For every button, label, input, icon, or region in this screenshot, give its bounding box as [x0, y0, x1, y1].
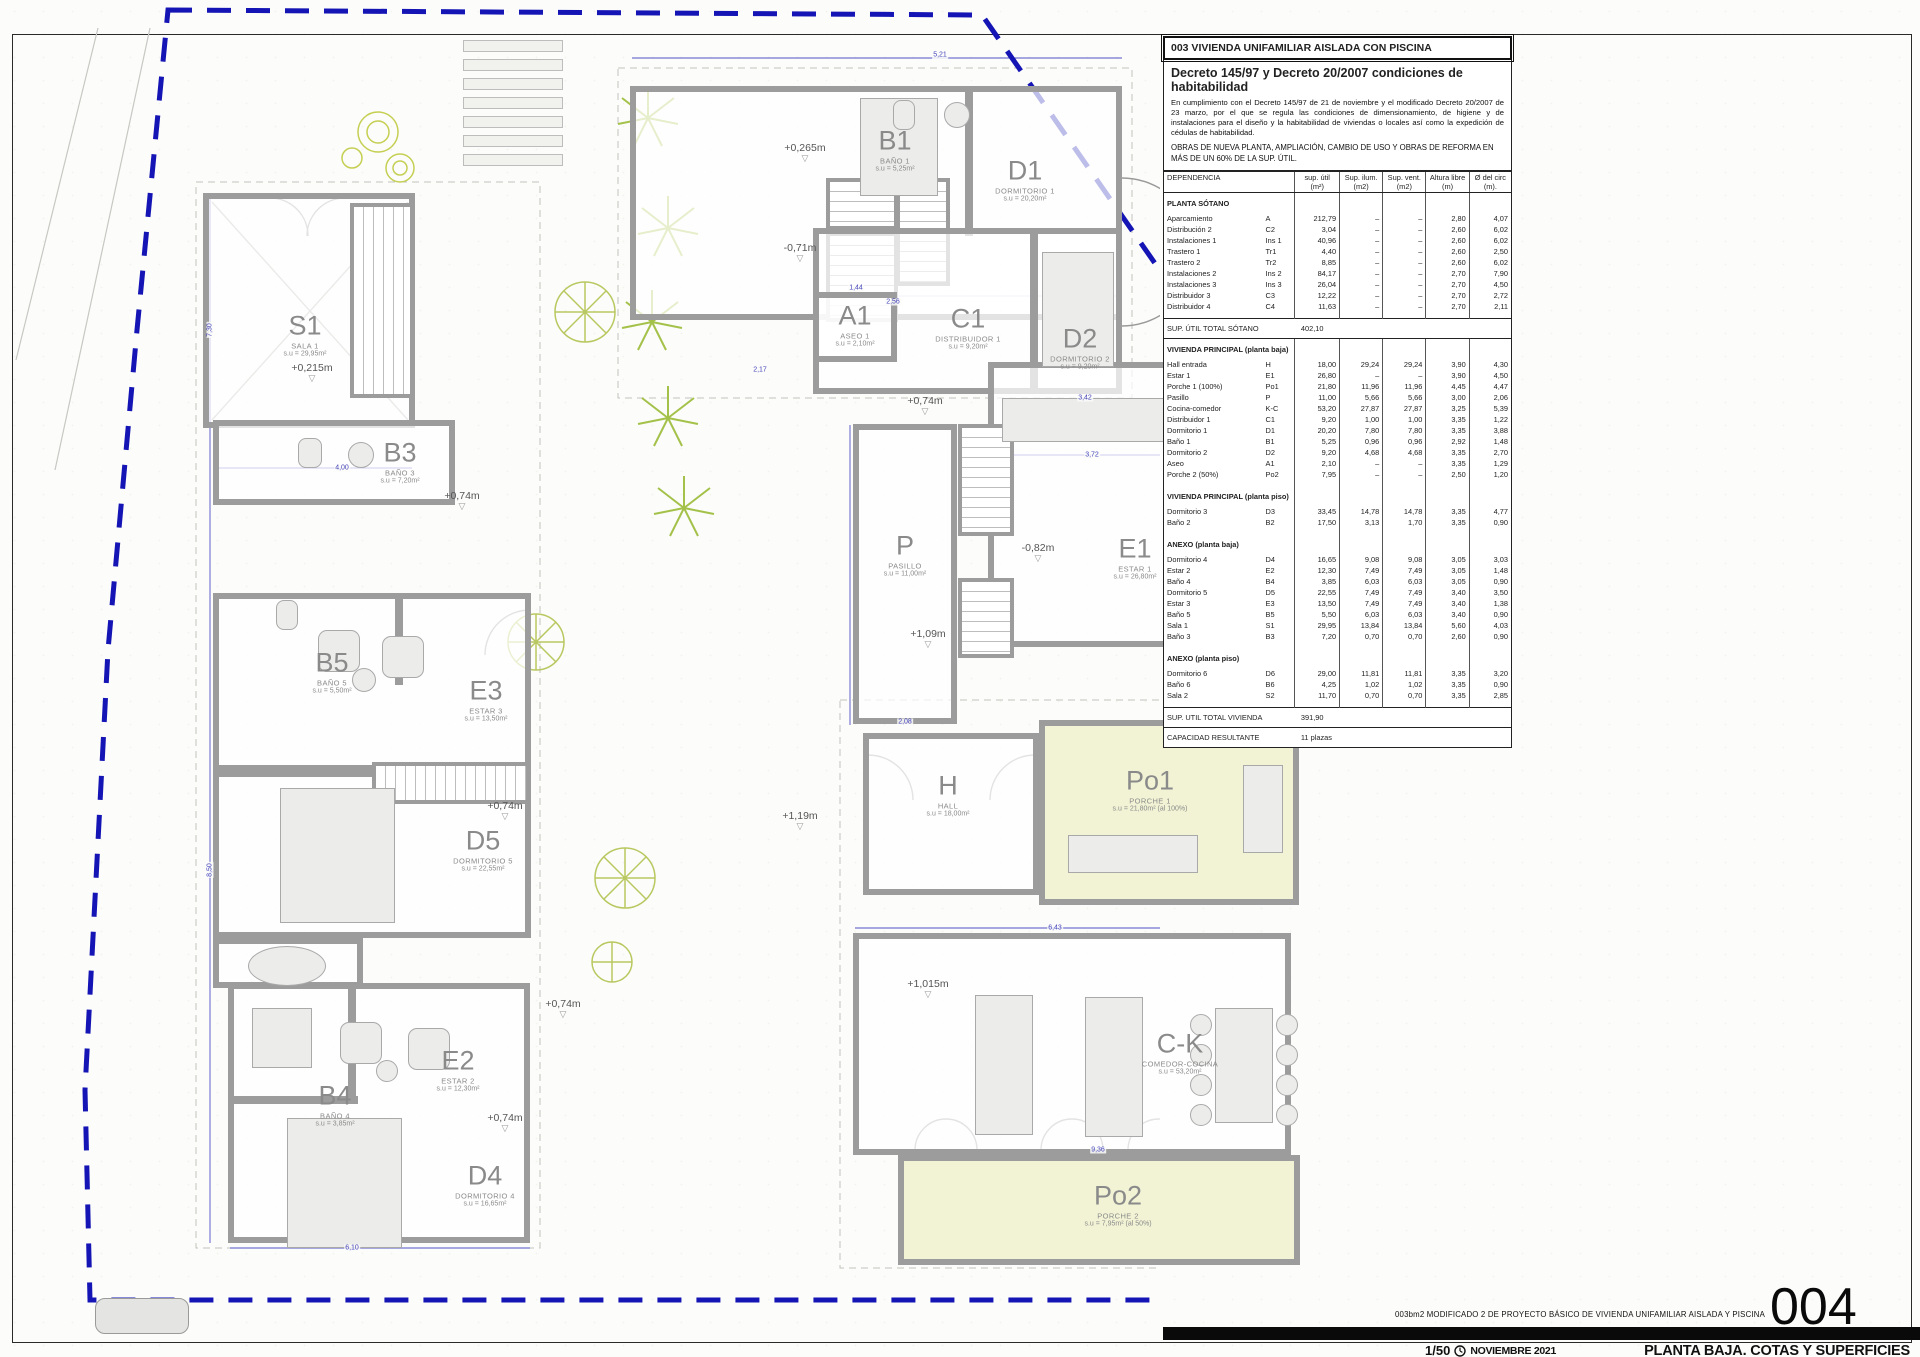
table-cell: 21,80: [1295, 381, 1340, 392]
drawing-sheet: S1SALA 1s.u = 29,95m² B3BAÑO 3s.u = 7,20…: [0, 0, 1920, 1357]
table-cell: E2: [1263, 565, 1295, 576]
table-cell: Porche 2 (50%): [1164, 469, 1263, 480]
chair: [1276, 1044, 1298, 1066]
table-cell: B4: [1263, 576, 1295, 587]
pergola-slat: [463, 135, 563, 147]
level-marker: -0,82m▽: [1022, 542, 1055, 562]
table-cell: Baño 5: [1164, 609, 1263, 620]
table-cell: [1295, 648, 1340, 668]
table-cell: [1340, 534, 1383, 554]
clock-icon: [1454, 1345, 1466, 1357]
level-marker: +0,74m▽: [444, 490, 479, 510]
table-cell: 6,03: [1383, 609, 1426, 620]
table-cell: [1383, 338, 1426, 359]
dimension-label: 5,21: [932, 52, 948, 59]
table-section-title: VIVIENDA PRINCIPAL (planta baja): [1164, 338, 1512, 359]
dimension-label: 3,42: [1077, 395, 1093, 402]
table-row: Instalaciones 1Ins 140,96––2,606,02: [1164, 235, 1512, 246]
table-cell: 7,49: [1340, 587, 1383, 598]
table-cell: Dormitorio 3: [1164, 506, 1263, 517]
table-cell: 1,48: [1469, 436, 1511, 447]
table-cell: –: [1383, 301, 1426, 312]
table-cell: 11,70: [1295, 690, 1340, 701]
level-triangle-icon: ▽: [784, 154, 825, 162]
table-cell: 33,45: [1295, 506, 1340, 517]
table-cell: 3,50: [1469, 587, 1511, 598]
table-cell: 11,96: [1340, 381, 1383, 392]
date-value: NOVIEMBRE 2021: [1470, 1345, 1556, 1357]
table-col-header: DEPENDENCIA: [1164, 171, 1295, 192]
table-cell: 13,50: [1295, 598, 1340, 609]
side-table-e3: [352, 668, 376, 692]
table-cell: 11,00: [1295, 392, 1340, 403]
table-cell: 6,02: [1469, 224, 1511, 235]
table-cell: –: [1383, 257, 1426, 268]
pergola-slat: [463, 116, 563, 128]
table-row: Estar 2E212,307,497,493,051,48: [1164, 565, 1512, 576]
table-cell: ANEXO (planta baja): [1164, 534, 1295, 554]
table-cell: 0,96: [1383, 436, 1426, 447]
table-cell: 2,80: [1426, 213, 1469, 224]
table-row: Distribuidor 4C411,63––2,702,11: [1164, 301, 1512, 312]
table-cell: 20,20: [1295, 425, 1340, 436]
table-cell: 0,96: [1340, 436, 1383, 447]
table-cell: Trastero 1: [1164, 246, 1263, 257]
chair: [1190, 1044, 1212, 1066]
table-cell: Po2: [1263, 469, 1295, 480]
sink-b1: [944, 102, 970, 128]
habitability-table: DEPENDENCIAsup. útil (m²)Sup. ilum. (m2)…: [1163, 171, 1512, 748]
table-cell: [1340, 192, 1383, 213]
table-cell: [1383, 534, 1426, 554]
level-marker: +1,19m▽: [782, 810, 817, 830]
porch-po2: [898, 1155, 1300, 1265]
table-cell: 0,70: [1340, 690, 1383, 701]
table-section-title: ANEXO (planta piso): [1164, 648, 1512, 668]
table-cell: 11,81: [1340, 668, 1383, 679]
table-cell: 3,35: [1426, 506, 1469, 517]
table-cell: Estar 1: [1164, 370, 1263, 381]
table-cell: 1,02: [1383, 679, 1426, 690]
table-cell: Po1: [1263, 381, 1295, 392]
table-cell: 2,60: [1426, 257, 1469, 268]
table-cell: S1: [1263, 620, 1295, 631]
table-cell: –: [1383, 268, 1426, 279]
level-marker: +0,74m▽: [907, 395, 942, 415]
table-cell: 27,87: [1340, 403, 1383, 414]
table-cell: 6,02: [1469, 257, 1511, 268]
table-section-title: VIVIENDA PRINCIPAL (planta piso): [1164, 486, 1512, 506]
table-cell: 3,40: [1426, 598, 1469, 609]
table-cell: 17,50: [1295, 517, 1340, 528]
table-col-header: sup. útil (m²): [1295, 171, 1340, 192]
table-cell: [1469, 338, 1511, 359]
table-cell: –: [1383, 370, 1426, 381]
table-cell: 1,20: [1469, 469, 1511, 480]
table-cell: 2,06: [1469, 392, 1511, 403]
shrub-icon: [342, 112, 414, 182]
table-cell: Aseo: [1164, 458, 1263, 469]
table-cell: 4,25: [1295, 679, 1340, 690]
table-cell: 2,60: [1426, 235, 1469, 246]
table-cell: C1: [1263, 414, 1295, 425]
table-col-header: Sup. vent. (m2): [1383, 171, 1426, 192]
table-cell: 9,20: [1295, 414, 1340, 425]
table-cell: Dormitorio 2: [1164, 447, 1263, 458]
table-cell: Ins 2: [1263, 268, 1295, 279]
table-cell: –: [1383, 458, 1426, 469]
bed-d5: [280, 788, 395, 923]
table-cell: 2,10: [1295, 458, 1340, 469]
toilet-b3: [298, 438, 322, 468]
table-cell: SUP. ÚTIL TOTAL SÓTANO: [1164, 318, 1295, 338]
titleblock-bar: [1163, 1327, 1920, 1340]
sheet-number: 004: [1770, 1281, 1920, 1333]
table-cell: 2,72: [1469, 290, 1511, 301]
table-cell: D5: [1263, 587, 1295, 598]
table-cell: 22,55: [1295, 587, 1340, 598]
table-row: Estar 3E313,507,497,493,401,38: [1164, 598, 1512, 609]
table-cell: [1426, 648, 1469, 668]
table-cell: Baño 2: [1164, 517, 1263, 528]
side-table-e2: [376, 1060, 398, 1082]
table-cell: 3,35: [1426, 517, 1469, 528]
table-cell: ANEXO (planta piso): [1164, 648, 1295, 668]
table-cell: 5,66: [1340, 392, 1383, 403]
table-cell: 3,35: [1426, 414, 1469, 425]
table-header: DEPENDENCIAsup. útil (m²)Sup. ilum. (m2)…: [1164, 171, 1512, 192]
dimension-label: 6,10: [344, 1245, 360, 1252]
table-cell: 1,29: [1469, 458, 1511, 469]
chair: [1276, 1074, 1298, 1096]
table-cell: [1340, 318, 1512, 338]
table-row: Baño 4B43,856,036,033,050,90: [1164, 576, 1512, 587]
table-cell: Porche 1 (100%): [1164, 381, 1263, 392]
table-cell: 2,60: [1426, 224, 1469, 235]
table-cell: 2,50: [1469, 246, 1511, 257]
table-cell: 0,70: [1383, 631, 1426, 642]
table-row: Distribuidor 1C19,201,001,003,351,22: [1164, 414, 1512, 425]
table-cell: 3,20: [1469, 668, 1511, 679]
table-cell: 3,04: [1295, 224, 1340, 235]
table-row: Sala 1S129,9513,8413,845,604,03: [1164, 620, 1512, 631]
table-cell: Dormitorio 5: [1164, 587, 1263, 598]
table-cell: [1426, 486, 1469, 506]
table-cell: 4,68: [1340, 447, 1383, 458]
table-cell: [1469, 192, 1511, 213]
table-cell: 7,49: [1383, 565, 1426, 576]
table-cell: E1: [1263, 370, 1295, 381]
dining-table: [1215, 1008, 1273, 1123]
table-cell: –: [1340, 268, 1383, 279]
table-cell: 29,00: [1295, 668, 1340, 679]
toilet-b5: [276, 600, 298, 630]
table-cell: 0,70: [1340, 631, 1383, 642]
table-col-header: Altura libre (m): [1426, 171, 1469, 192]
table-row: Hall entradaH18,0029,2429,243,904,30: [1164, 359, 1512, 370]
table-cell: 2,92: [1426, 436, 1469, 447]
sink-b3: [348, 442, 374, 468]
decree-body: En cumplimiento con el Decreto 145/97 de…: [1171, 98, 1504, 137]
table-cell: 4,77: [1469, 506, 1511, 517]
table-cell: Tr1: [1263, 246, 1295, 257]
table-cell: 6,02: [1469, 235, 1511, 246]
table-cell: –: [1340, 235, 1383, 246]
table-cell: 40,96: [1295, 235, 1340, 246]
table-cell: 5,66: [1383, 392, 1426, 403]
table-row: Baño 5B55,506,036,033,400,90: [1164, 609, 1512, 620]
table-cell: B2: [1263, 517, 1295, 528]
corridor-p-walls: [853, 424, 957, 724]
table-cell: Dormitorio 4: [1164, 554, 1263, 565]
table-cell: B6: [1263, 679, 1295, 690]
table-cell: 9,08: [1383, 554, 1426, 565]
table-row: AparcamientoA212,79––2,804,07: [1164, 213, 1512, 224]
decree-title: Decreto 145/97 y Decreto 20/2007 condici…: [1171, 66, 1504, 94]
table-cell: 2,70: [1469, 447, 1511, 458]
table-row: Distribuidor 3C312,22––2,702,72: [1164, 290, 1512, 301]
table-cell: K-C: [1263, 403, 1295, 414]
table-cell: 5,39: [1469, 403, 1511, 414]
table-cell: 14,78: [1383, 506, 1426, 517]
table-cell: Distribuidor 3: [1164, 290, 1263, 301]
floor-plan: S1SALA 1s.u = 29,95m² B3BAÑO 3s.u = 7,20…: [0, 0, 1160, 1357]
table-cell: –: [1340, 213, 1383, 224]
table-cell: 13,84: [1383, 620, 1426, 631]
table-cell: –: [1340, 469, 1383, 480]
table-cell: 29,95: [1295, 620, 1340, 631]
table-cell: Ins 1: [1263, 235, 1295, 246]
table-cell: 4,50: [1469, 370, 1511, 381]
table-cell: –: [1383, 235, 1426, 246]
table-row: Estar 1E126,80––3,904,50: [1164, 370, 1512, 381]
table-cell: S2: [1263, 690, 1295, 701]
table-cell: 2,70: [1426, 268, 1469, 279]
dimension-label: 2,56: [885, 299, 901, 306]
table-row: Instalaciones 3Ins 326,04––2,704,50: [1164, 279, 1512, 290]
table-cell: PLANTA SÓTANO: [1164, 192, 1295, 213]
table-section-title: ANEXO (planta baja): [1164, 534, 1512, 554]
table-cell: 2,70: [1426, 279, 1469, 290]
scale-date: 1/50 NOVIEMBRE 2021: [1425, 1343, 1556, 1357]
room-h-walls: [863, 733, 1039, 895]
table-cell: [1340, 648, 1383, 668]
table-row: Baño 1B15,250,960,962,921,48: [1164, 436, 1512, 447]
table-total-row: SUP. UTIL TOTAL VIVIENDA391,90: [1164, 707, 1512, 727]
level-marker: +1,015m▽: [907, 978, 948, 998]
table-cell: 6,03: [1383, 576, 1426, 587]
table-cell: [1295, 486, 1340, 506]
table-cell: 27,87: [1383, 403, 1426, 414]
table-cell: 7,80: [1340, 425, 1383, 436]
table-cell: 18,00: [1295, 359, 1340, 370]
armchair-e2: [340, 1022, 382, 1064]
table-row: Dormitorio 6D629,0011,8111,813,353,20: [1164, 668, 1512, 679]
table-cell: –: [1383, 279, 1426, 290]
table-cell: 0,90: [1469, 517, 1511, 528]
table-cell: 402,10: [1295, 318, 1340, 338]
table-row: Dormitorio 5D522,557,497,493,403,50: [1164, 587, 1512, 598]
table-row: Porche 2 (50%)Po27,95––2,501,20: [1164, 469, 1512, 480]
table-cell: 7,49: [1383, 598, 1426, 609]
table-cell: [1340, 727, 1512, 747]
chair: [1190, 1014, 1212, 1036]
table-cell: 7,49: [1383, 587, 1426, 598]
table-cell: C4: [1263, 301, 1295, 312]
level-marker: +0,74m▽: [487, 800, 522, 820]
table-cell: Pasillo: [1164, 392, 1263, 403]
table-cell: –: [1383, 469, 1426, 480]
table-cell: Sala 1: [1164, 620, 1263, 631]
table-cell: 12,22: [1295, 290, 1340, 301]
table-cell: –: [1383, 224, 1426, 235]
table-cell: 3,90: [1426, 370, 1469, 381]
table-cell: 3,35: [1426, 425, 1469, 436]
dimension-label: 6,43: [1047, 925, 1063, 932]
table-cell: 7,49: [1340, 598, 1383, 609]
table-cell: 391,90: [1295, 707, 1340, 727]
table-cell: –: [1340, 458, 1383, 469]
table-cell: Distribución 2: [1164, 224, 1263, 235]
dimension-label: 7,30: [207, 322, 214, 338]
table-cell: [1295, 192, 1340, 213]
table-cell: [1469, 486, 1511, 506]
table-row: Cocina-comedorK-C53,2027,8727,873,255,39: [1164, 403, 1512, 414]
table-cell: Baño 1: [1164, 436, 1263, 447]
table-cell: 2,60: [1426, 246, 1469, 257]
table-row: AseoA12,10––3,351,29: [1164, 458, 1512, 469]
chair: [1190, 1074, 1212, 1096]
pergola-slat: [463, 40, 563, 52]
table-cell: VIVIENDA PRINCIPAL (planta baja): [1164, 338, 1295, 359]
table-cell: [1426, 338, 1469, 359]
table-cell: 0,90: [1469, 576, 1511, 587]
pergola-slat: [463, 59, 563, 71]
level-marker: +0,74m▽: [545, 998, 580, 1018]
table-cell: 4,40: [1295, 246, 1340, 257]
table-cell: –: [1340, 257, 1383, 268]
table-cell: 9,20: [1295, 447, 1340, 458]
table-cell: 3,05: [1426, 565, 1469, 576]
table-cell: Cocina-comedor: [1164, 403, 1263, 414]
table-cell: 29,24: [1340, 359, 1383, 370]
table-cell: Distribuidor 1: [1164, 414, 1263, 425]
table-cell: Instalaciones 3: [1164, 279, 1263, 290]
table-cell: 1,22: [1469, 414, 1511, 425]
table-cell: 4,50: [1469, 279, 1511, 290]
level-marker: -0,71m▽: [784, 242, 817, 262]
table-cell: 26,04: [1295, 279, 1340, 290]
table-row: Distribución 2C23,04––2,606,02: [1164, 224, 1512, 235]
table-cell: [1383, 486, 1426, 506]
scale-value: 1/50: [1425, 1343, 1450, 1357]
table-row: Dormitorio 2D29,204,684,683,352,70: [1164, 447, 1512, 458]
dimension-label: 8,50: [207, 862, 214, 878]
table-cell: Ins 3: [1263, 279, 1295, 290]
table-cell: –: [1340, 224, 1383, 235]
table-row: Dormitorio 1D120,207,807,803,353,88: [1164, 425, 1512, 436]
table-cell: Sala 2: [1164, 690, 1263, 701]
table-cell: 11,96: [1383, 381, 1426, 392]
table-cell: 2,50: [1426, 469, 1469, 480]
table-row: Dormitorio 3D333,4514,7814,783,354,77: [1164, 506, 1512, 517]
table-cell: SUP. UTIL TOTAL VIVIENDA: [1164, 707, 1295, 727]
table-cell: 3,00: [1426, 392, 1469, 403]
table-cell: D3: [1263, 506, 1295, 517]
table-cell: D1: [1263, 425, 1295, 436]
table-row: Trastero 1Tr14,40––2,602,50: [1164, 246, 1512, 257]
table-cell: 26,80: [1295, 370, 1340, 381]
dimension-label: 3,72: [1084, 452, 1100, 459]
table-cell: Instalaciones 1: [1164, 235, 1263, 246]
table-cell: 1,48: [1469, 565, 1511, 576]
table-cell: Dormitorio 1: [1164, 425, 1263, 436]
table-cell: 7,95: [1295, 469, 1340, 480]
table-cell: 4,47: [1469, 381, 1511, 392]
table-row: Instalaciones 2Ins 284,17––2,707,90: [1164, 268, 1512, 279]
table-row: Sala 2S211,700,700,703,352,85: [1164, 690, 1512, 701]
table-cell: –: [1383, 213, 1426, 224]
table-cell: Baño 3: [1164, 631, 1263, 642]
table-cell: Baño 6: [1164, 679, 1263, 690]
table-cell: 1,00: [1383, 414, 1426, 425]
table-cell: 3,35: [1426, 690, 1469, 701]
table-cell: –: [1340, 279, 1383, 290]
table-cell: 3,88: [1469, 425, 1511, 436]
table-cell: D4: [1263, 554, 1295, 565]
stair-annex: [372, 762, 530, 804]
table-cell: [1469, 534, 1511, 554]
table-cell: 2,60: [1426, 631, 1469, 642]
table-cell: 4,30: [1469, 359, 1511, 370]
table-cell: 5,50: [1295, 609, 1340, 620]
table-cell: 0,90: [1469, 679, 1511, 690]
table-cell: 1,38: [1469, 598, 1511, 609]
table-cell: 2,85: [1469, 690, 1511, 701]
shower-b4: [252, 1008, 312, 1068]
dimension-label: 1,44: [848, 285, 864, 292]
armchair-e2: [408, 1028, 450, 1070]
table-cell: 3,35: [1426, 447, 1469, 458]
table-row: PasilloP11,005,665,663,002,06: [1164, 392, 1512, 403]
table-cell: 0,70: [1383, 690, 1426, 701]
table-cell: –: [1340, 246, 1383, 257]
table-cell: B3: [1263, 631, 1295, 642]
table-cell: 7,20: [1295, 631, 1340, 642]
table-cell: 84,17: [1295, 268, 1340, 279]
table-cell: 2,70: [1426, 290, 1469, 301]
table-cell: 7,49: [1340, 565, 1383, 576]
table-total-row: SUP. ÚTIL TOTAL SÓTANO402,10: [1164, 318, 1512, 338]
table-cell: [1426, 192, 1469, 213]
table-cell: 3,35: [1426, 458, 1469, 469]
table-col-header: Sup. ilum. (m2): [1340, 171, 1383, 192]
stair-corridor-b: [958, 578, 1014, 658]
table-cell: 2,70: [1426, 301, 1469, 312]
dimension-label: 9,36: [1090, 1147, 1106, 1154]
table-cell: P: [1263, 392, 1295, 403]
info-panel: 003 VIVIENDA UNIFAMILIAR AISLADA CON PIS…: [1163, 36, 1512, 748]
table-cell: 3,35: [1426, 679, 1469, 690]
table-cell: 4,03: [1469, 620, 1511, 631]
toilet-b1: [893, 100, 915, 130]
table-cell: C3: [1263, 290, 1295, 301]
bathtub: [248, 946, 326, 986]
table-cell: –: [1383, 290, 1426, 301]
table-cell: 8,85: [1295, 257, 1340, 268]
project-line: 003bm2 MODIFICADO 2 DE PROYECTO BÁSICO D…: [1170, 1310, 1765, 1319]
table-row: Porche 1 (100%)Po121,8011,9611,964,454,4…: [1164, 381, 1512, 392]
